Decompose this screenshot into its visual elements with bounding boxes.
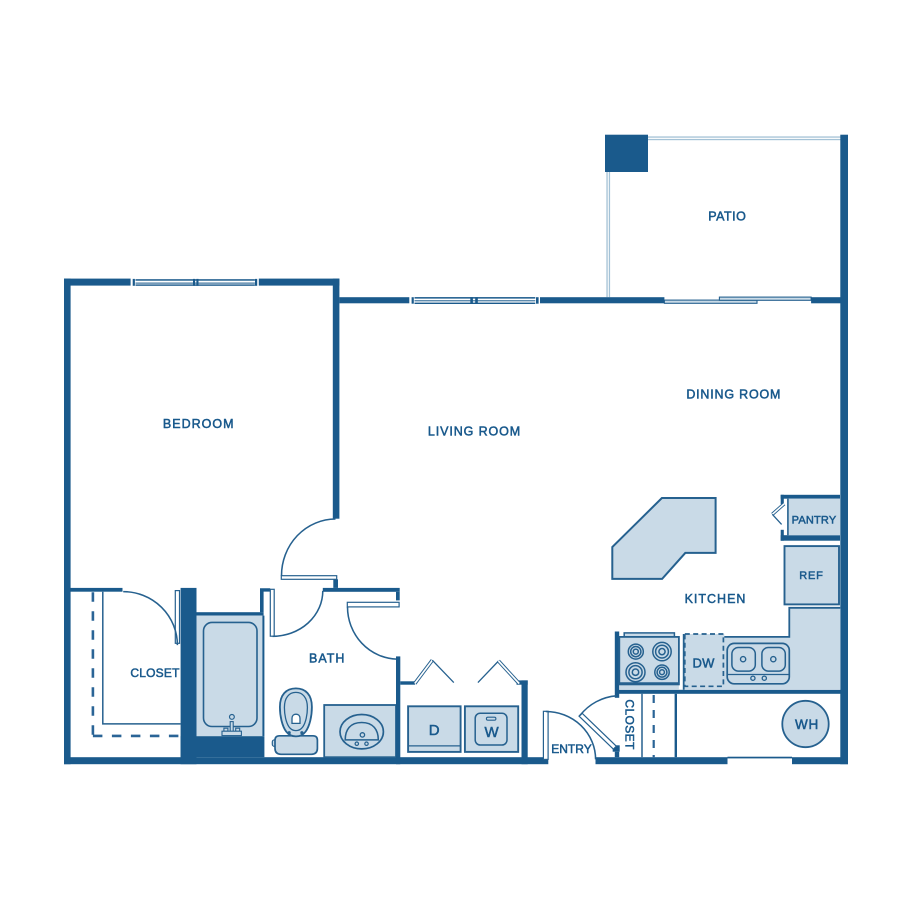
svg-text:PANTRY: PANTRY: [792, 515, 837, 527]
svg-text:REF: REF: [799, 570, 823, 582]
svg-text:CLOSET: CLOSET: [130, 666, 180, 680]
svg-text:WH: WH: [795, 717, 819, 732]
svg-text:LIVING ROOM: LIVING ROOM: [428, 425, 521, 439]
svg-text:KITCHEN: KITCHEN: [685, 592, 747, 606]
svg-text:BEDROOM: BEDROOM: [163, 417, 235, 431]
svg-text:W: W: [485, 724, 500, 741]
svg-text:PATIO: PATIO: [708, 210, 746, 224]
svg-text:DW: DW: [692, 656, 715, 671]
svg-text:D: D: [429, 722, 440, 739]
svg-text:CLOSET: CLOSET: [622, 699, 636, 750]
svg-text:ENTRY: ENTRY: [551, 742, 591, 756]
svg-text:DINING ROOM: DINING ROOM: [686, 388, 781, 402]
svg-text:BATH: BATH: [309, 652, 345, 666]
